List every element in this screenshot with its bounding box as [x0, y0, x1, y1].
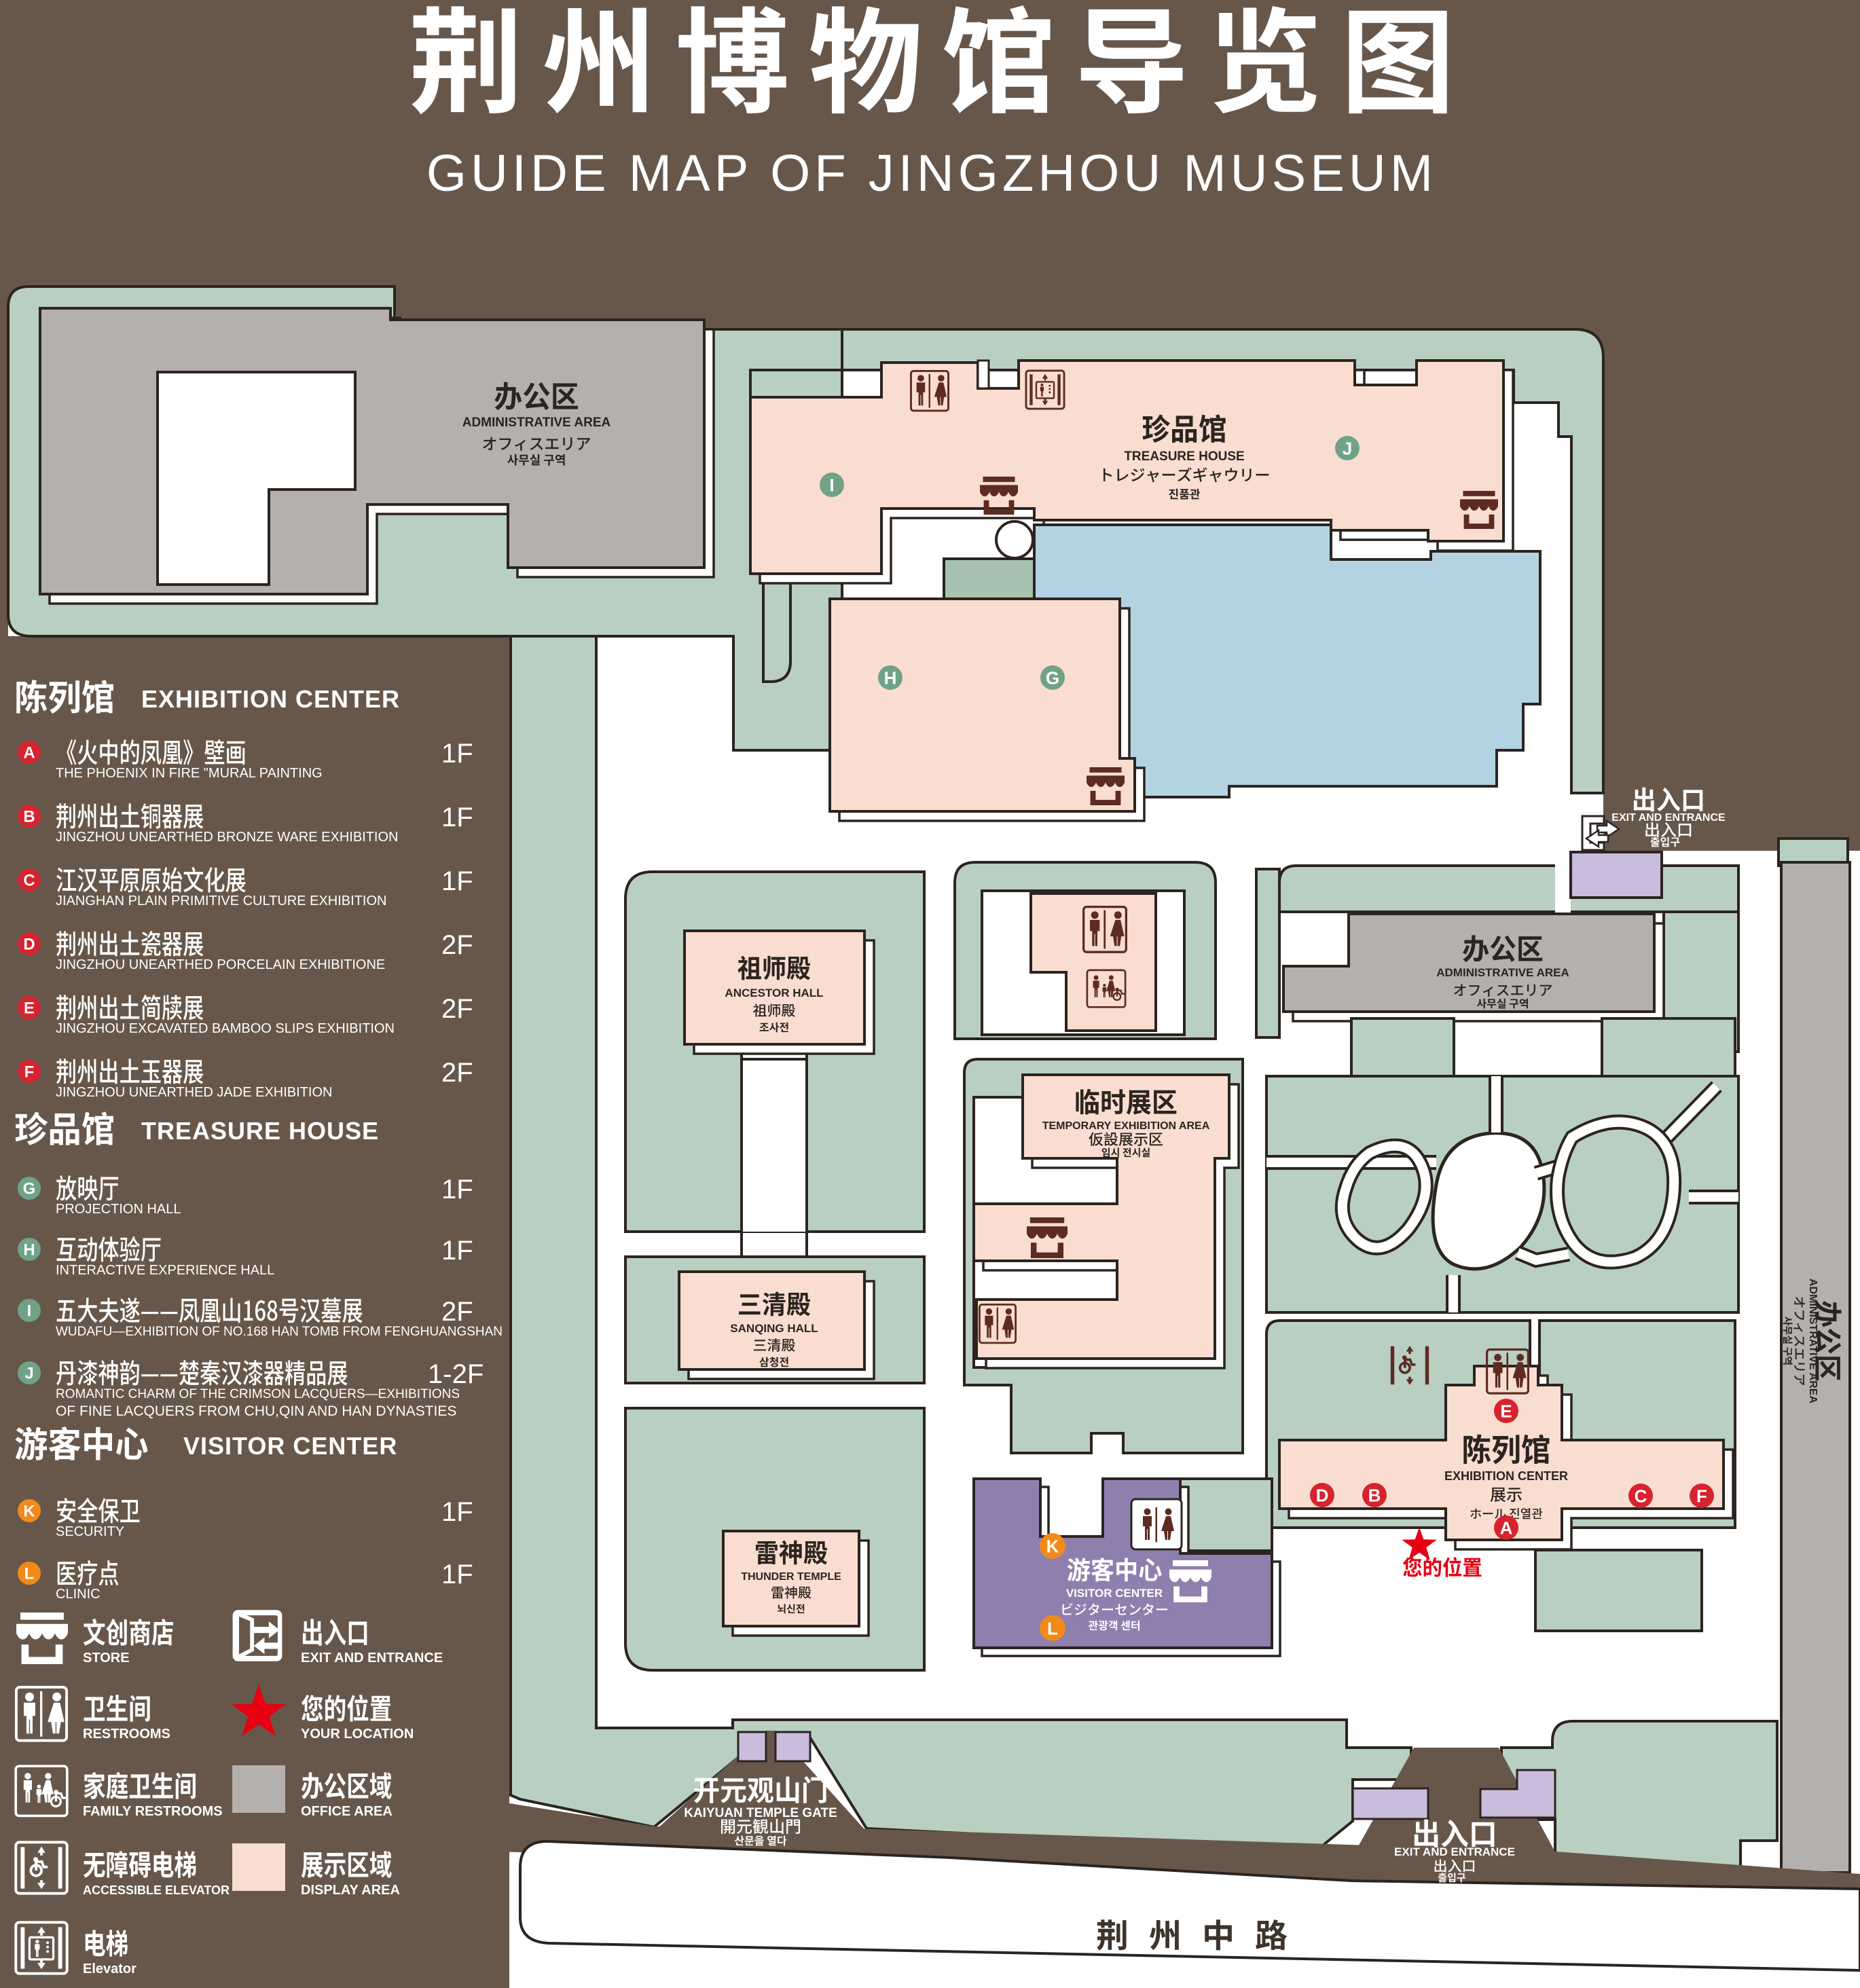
svg-text:G: G: [23, 1180, 36, 1198]
svg-text:EXHIBITION CENTER: EXHIBITION CENTER: [1444, 1469, 1568, 1483]
svg-text:TREASURE HOUSE: TREASURE HOUSE: [141, 1117, 379, 1145]
svg-text:WUDAFU—EXHIBITION OF NO.168 HA: WUDAFU—EXHIBITION OF NO.168 HAN TOMB FRO…: [56, 1325, 503, 1339]
svg-text:H: H: [23, 1241, 35, 1259]
svg-text:D: D: [1316, 1485, 1329, 1505]
svg-text:1F: 1F: [441, 1560, 473, 1589]
svg-text:1F: 1F: [441, 1236, 473, 1266]
svg-text:CLINIC: CLINIC: [56, 1587, 101, 1602]
svg-text:JIANGHAN PLAIN PRIMITIVE CULTU: JIANGHAN PLAIN PRIMITIVE CULTURE EXHIBIT…: [56, 894, 386, 908]
svg-text:VISITOR CENTER: VISITOR CENTER: [183, 1432, 397, 1460]
svg-text:1F: 1F: [441, 739, 473, 769]
svg-text:D: D: [23, 936, 35, 954]
svg-text:B: B: [1368, 1485, 1381, 1505]
svg-text:THUNDER TEMPLE: THUNDER TEMPLE: [741, 1571, 841, 1583]
svg-text:E: E: [1500, 1401, 1512, 1421]
svg-text:2F: 2F: [441, 994, 473, 1024]
svg-text:L: L: [1047, 1618, 1058, 1638]
svg-text:J: J: [24, 1365, 33, 1383]
svg-text:KAIYUAN TEMPLE GATE: KAIYUAN TEMPLE GATE: [684, 1806, 837, 1820]
svg-text:J: J: [1343, 438, 1352, 458]
svg-text:JINGZHOU EXCAVATED BAMBOO SLIP: JINGZHOU EXCAVATED BAMBOO SLIPS EXHIBITI…: [56, 1021, 395, 1036]
svg-text:A: A: [23, 744, 35, 762]
svg-text:YOUR LOCATION: YOUR LOCATION: [301, 1727, 414, 1742]
svg-text:K: K: [1046, 1536, 1059, 1556]
svg-text:STORE: STORE: [83, 1651, 130, 1665]
svg-text:F: F: [1696, 1486, 1707, 1506]
svg-text:THE PHOENIX IN FIRE "MURAL PAI: THE PHOENIX IN FIRE "MURAL PAINTING: [56, 766, 323, 781]
svg-text:2F: 2F: [441, 1058, 473, 1088]
svg-text:1F: 1F: [441, 1497, 473, 1527]
svg-text:1-2F: 1-2F: [428, 1359, 484, 1389]
svg-text:G: G: [1046, 667, 1059, 688]
svg-text:EXIT AND ENTRANCE: EXIT AND ENTRANCE: [1611, 812, 1726, 824]
svg-text:ADMINISTRATIVE AREA: ADMINISTRATIVE AREA: [1807, 1278, 1819, 1403]
svg-text:FAMILY RESTROOMS: FAMILY RESTROOMS: [83, 1804, 223, 1819]
svg-text:C: C: [1635, 1486, 1647, 1506]
svg-text:TEMPORARY EXHIBITION AREA: TEMPORARY EXHIBITION AREA: [1042, 1120, 1210, 1132]
svg-text:ADMINISTRATIVE AREA: ADMINISTRATIVE AREA: [1436, 966, 1569, 979]
svg-text:L: L: [24, 1565, 35, 1583]
svg-text:VISITOR CENTER: VISITOR CENTER: [1066, 1587, 1163, 1600]
svg-text:INTERACTIVE EXPERIENCE HALL: INTERACTIVE EXPERIENCE HALL: [56, 1263, 274, 1278]
svg-text:E: E: [24, 999, 35, 1018]
svg-text:PROJECTION HALL: PROJECTION HALL: [56, 1202, 181, 1217]
svg-text:OF FINE LACQUERS FROM CHU,QIN: OF FINE LACQUERS FROM CHU,QIN AND HAN DY…: [56, 1403, 456, 1419]
svg-text:Elevator: Elevator: [83, 1962, 136, 1976]
svg-text:JINGZHOU UNEARTHED JADE EXHIBI: JINGZHOU UNEARTHED JADE EXHIBITION: [56, 1085, 332, 1100]
svg-text:SECURITY: SECURITY: [56, 1524, 124, 1539]
svg-text:1F: 1F: [441, 803, 473, 832]
svg-text:A: A: [1500, 1517, 1513, 1538]
svg-text:H: H: [884, 667, 897, 688]
svg-text:2F: 2F: [441, 1297, 473, 1327]
svg-text:ACCESSIBLE ELEVATOR: ACCESSIBLE ELEVATOR: [83, 1883, 230, 1897]
svg-text:GUIDE MAP OF JINGZHOU MUSEUM: GUIDE MAP OF JINGZHOU MUSEUM: [426, 145, 1437, 202]
svg-text:1F: 1F: [441, 1175, 473, 1204]
svg-text:DISPLAY AREA: DISPLAY AREA: [301, 1883, 400, 1898]
svg-text:SANQING HALL: SANQING HALL: [730, 1322, 818, 1335]
svg-text:JINGZHOU UNEARTHED PORCELAIN E: JINGZHOU UNEARTHED PORCELAIN EXHIBITIONE: [56, 957, 385, 972]
svg-text:RESTROOMS: RESTROOMS: [83, 1727, 170, 1742]
svg-text:JINGZHOU UNEARTHED BRONZE WARE: JINGZHOU UNEARTHED BRONZE WARE EXHIBITIO…: [56, 830, 398, 845]
svg-text:I: I: [27, 1302, 32, 1321]
svg-text:ANCESTOR HALL: ANCESTOR HALL: [725, 987, 823, 999]
svg-text:ROMANTIC CHARM OF THE CRIMSON: ROMANTIC CHARM OF THE CRIMSON LACQUERS—E…: [56, 1387, 460, 1401]
svg-text:TREASURE HOUSE: TREASURE HOUSE: [1124, 449, 1244, 464]
svg-text:OFFICE AREA: OFFICE AREA: [301, 1804, 393, 1819]
svg-text:EXIT AND ENTRANCE: EXIT AND ENTRANCE: [1394, 1845, 1515, 1858]
svg-text:K: K: [23, 1503, 35, 1521]
svg-text:2F: 2F: [441, 930, 473, 960]
svg-text:1F: 1F: [441, 866, 473, 896]
svg-text:EXHIBITION CENTER: EXHIBITION CENTER: [141, 685, 400, 713]
svg-text:I: I: [829, 475, 834, 495]
svg-text:C: C: [23, 872, 35, 890]
svg-text:EXIT AND ENTRANCE: EXIT AND ENTRANCE: [301, 1651, 443, 1665]
svg-text:F: F: [24, 1063, 35, 1082]
svg-text:ADMINISTRATIVE AREA: ADMINISTRATIVE AREA: [462, 416, 611, 430]
svg-text:B: B: [23, 808, 35, 826]
